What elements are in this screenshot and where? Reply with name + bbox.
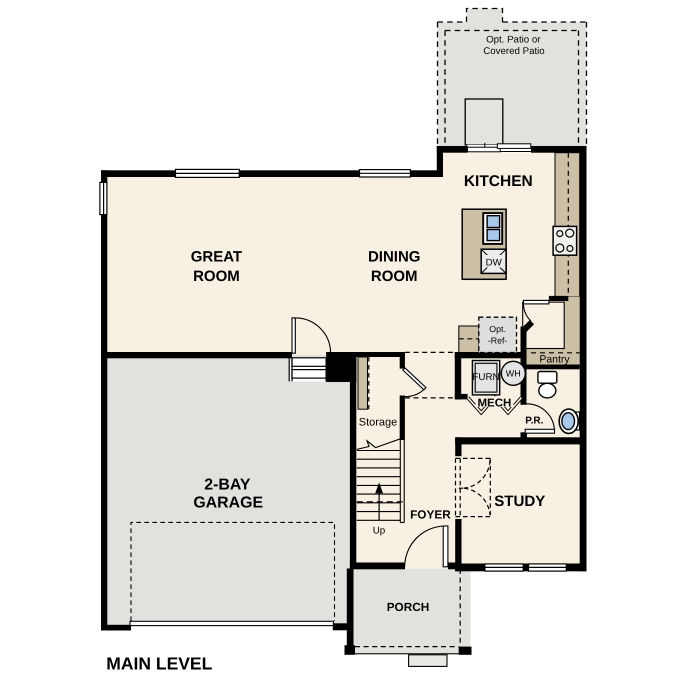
- svg-text:STUDY: STUDY: [494, 493, 545, 510]
- svg-text:MECH: MECH: [477, 398, 511, 410]
- svg-text:Storage: Storage: [359, 416, 398, 428]
- svg-text:Opt.: Opt.: [489, 324, 506, 334]
- svg-text:2-BAY: 2-BAY: [204, 477, 251, 494]
- svg-text:P.R.: P.R.: [525, 416, 543, 427]
- svg-text:DINING: DINING: [368, 249, 421, 266]
- svg-text:Covered Patio: Covered Patio: [483, 46, 544, 57]
- svg-text:ROOM: ROOM: [371, 268, 418, 285]
- svg-text:FURN: FURN: [472, 372, 499, 383]
- svg-text:Up: Up: [373, 525, 386, 536]
- svg-text:WH: WH: [506, 369, 521, 379]
- svg-text:FOYER: FOYER: [410, 508, 451, 522]
- svg-text:PORCH: PORCH: [387, 600, 430, 614]
- svg-text:MAIN LEVEL: MAIN LEVEL: [106, 654, 212, 674]
- svg-text:Opt. Patio or: Opt. Patio or: [486, 35, 541, 46]
- svg-text:-Ref-: -Ref-: [488, 335, 508, 345]
- svg-text:DW: DW: [486, 258, 503, 269]
- svg-text:GARAGE: GARAGE: [193, 495, 263, 512]
- svg-text:KITCHEN: KITCHEN: [464, 173, 533, 190]
- svg-text:Pantry: Pantry: [539, 353, 570, 365]
- svg-text:ROOM: ROOM: [193, 268, 240, 285]
- svg-text:GREAT: GREAT: [191, 249, 242, 266]
